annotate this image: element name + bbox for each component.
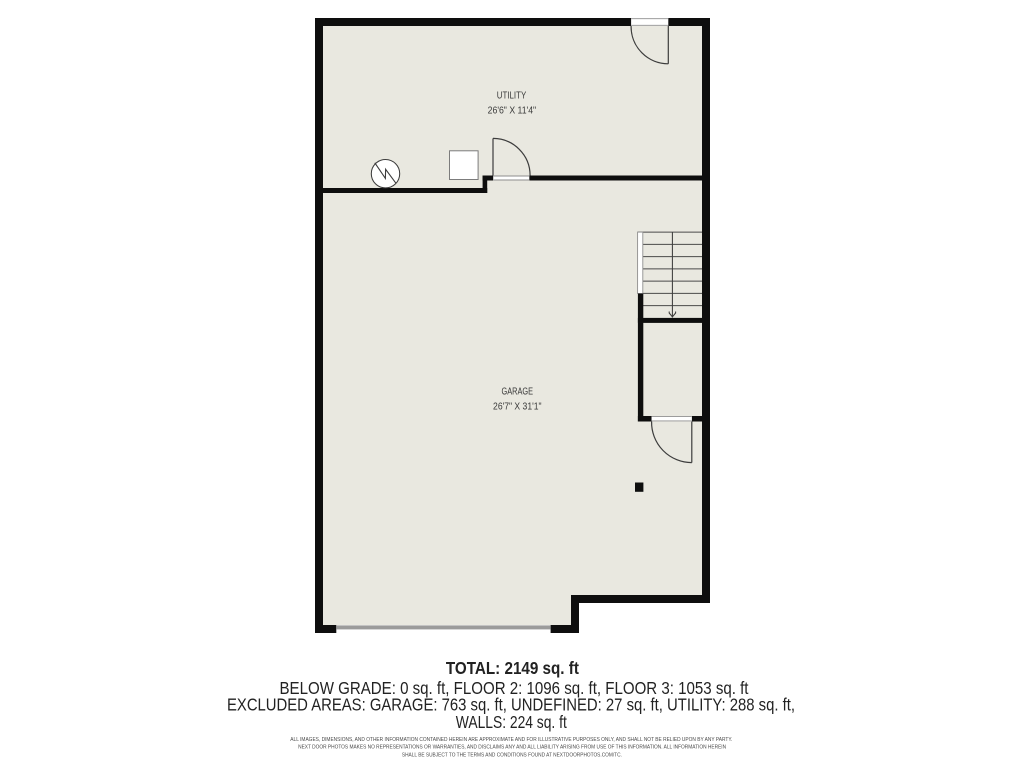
svg-text:26'7" X 31'1": 26'7" X 31'1" bbox=[493, 401, 542, 412]
svg-text:ALL IMAGES, DIMENSIONS, AND OT: ALL IMAGES, DIMENSIONS, AND OTHER INFORM… bbox=[290, 737, 732, 743]
svg-text:UTILITY: UTILITY bbox=[497, 91, 527, 102]
svg-text:WALLS: 224 sq. ft: WALLS: 224 sq. ft bbox=[456, 712, 567, 732]
svg-text:GARAGE: GARAGE bbox=[502, 387, 534, 398]
svg-text:SHALL BE SUBJECT TO THE TERMS: SHALL BE SUBJECT TO THE TERMS AND CONDIT… bbox=[402, 752, 622, 758]
svg-text:26'6" X 11'4": 26'6" X 11'4" bbox=[488, 106, 537, 117]
svg-text:NEXT DOOR PHOTOS MAKES NO REPR: NEXT DOOR PHOTOS MAKES NO REPRESENTATION… bbox=[298, 745, 726, 751]
svg-text:TOTAL: 2149 sq. ft: TOTAL: 2149 sq. ft bbox=[446, 658, 579, 678]
